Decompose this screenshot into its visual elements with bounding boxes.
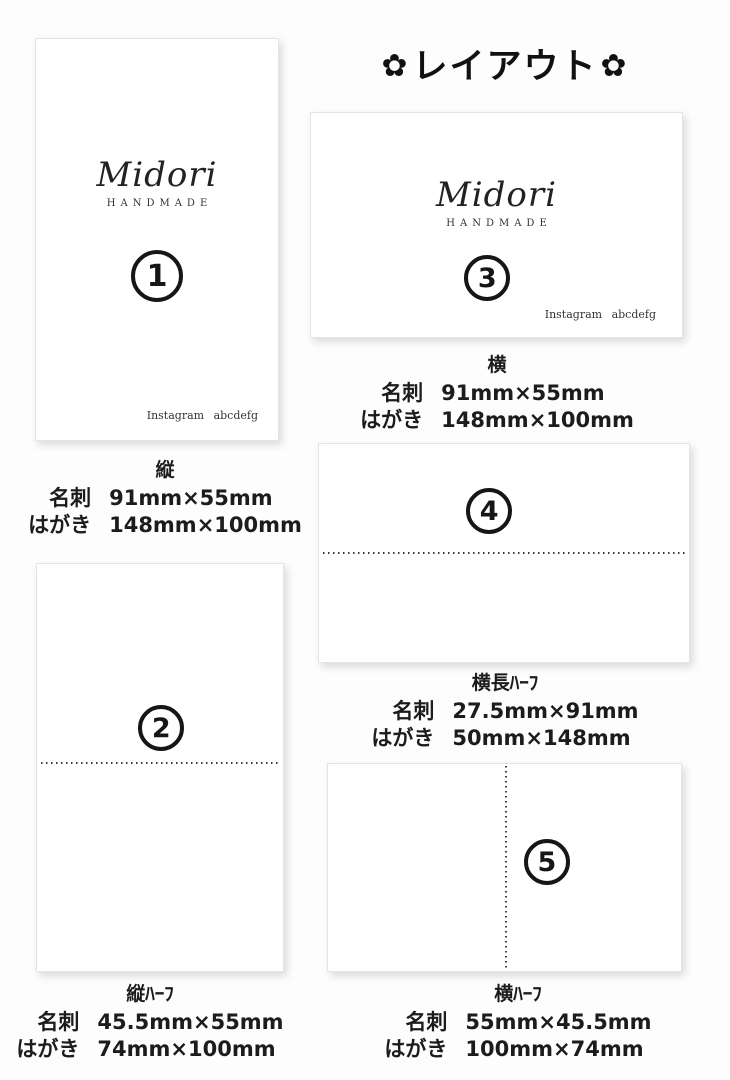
instagram-handle: Instagram abcdefg — [545, 308, 656, 321]
spec-size-table: 名刺 91mm×55mm はがき 148mm×100mm — [360, 380, 634, 433]
hagaki-size: 74mm×100mm — [97, 1036, 283, 1062]
hagaki-label: はがき — [28, 512, 91, 538]
layout-card-4-horizontal-long-half: 4 — [318, 443, 690, 663]
meishi-label: 名刺 — [28, 485, 91, 511]
spec-orientation-label: 縦ﾊｰﾌ — [0, 979, 300, 1006]
spec-size-table: 名刺 91mm×55mm はがき 148mm×100mm — [28, 485, 302, 538]
hagaki-label: はがき — [371, 725, 434, 751]
brand-subtitle: HANDMADE — [311, 218, 682, 229]
spec-horizontal: 横 名刺 91mm×55mm はがき 148mm×100mm — [347, 350, 647, 433]
spec-orientation-label: 横ﾊｰﾌ — [368, 979, 668, 1006]
hagaki-size: 148mm×100mm — [109, 512, 302, 538]
spec-horizontal-long-half: 横長ﾊｰﾌ 名刺 27.5mm×91mm はがき 50mm×148mm — [355, 668, 655, 751]
meishi-label: 名刺 — [371, 698, 434, 724]
instagram-handle: Instagram abcdefg — [147, 409, 258, 422]
spec-orientation-label: 縦 — [15, 455, 315, 482]
meishi-size: 27.5mm×91mm — [452, 698, 638, 724]
layout-guide-page: ✿レイアウト✿ Midori HANDMADE 1 Instagram abcd… — [0, 0, 730, 1080]
fold-line-horizontal — [41, 762, 279, 764]
layout-card-2-vertical-half: 2 — [36, 563, 284, 972]
hagaki-label: はがき — [16, 1036, 79, 1062]
spec-size-table: 名刺 27.5mm×91mm はがき 50mm×148mm — [371, 698, 638, 751]
hagaki-label: はがき — [384, 1036, 447, 1062]
spec-size-table: 名刺 55mm×45.5mm はがき 100mm×74mm — [384, 1009, 651, 1062]
layout-number-2-badge: 2 — [138, 705, 184, 751]
layout-number-5-badge: 5 — [524, 839, 570, 885]
flower-icon: ✿ — [598, 48, 632, 84]
spec-orientation-label: 横 — [347, 350, 647, 377]
fold-line-horizontal — [323, 552, 685, 554]
spec-vertical-half: 縦ﾊｰﾌ 名刺 45.5mm×55mm はがき 74mm×100mm — [0, 979, 300, 1062]
page-title-text: レイアウト — [412, 47, 597, 87]
hagaki-size: 100mm×74mm — [465, 1036, 651, 1062]
spec-horizontal-half: 横ﾊｰﾌ 名刺 55mm×45.5mm はがき 100mm×74mm — [368, 979, 668, 1062]
meishi-size: 45.5mm×55mm — [97, 1009, 283, 1035]
meishi-label: 名刺 — [16, 1009, 79, 1035]
layout-card-1-vertical: Midori HANDMADE 1 Instagram abcdefg — [35, 38, 279, 441]
brand-subtitle: HANDMADE — [36, 198, 278, 209]
fold-line-vertical — [505, 766, 507, 969]
flower-icon: ✿ — [379, 48, 413, 84]
layout-number-3-badge: 3 — [464, 255, 510, 301]
hagaki-size: 50mm×148mm — [452, 725, 638, 751]
meishi-size: 91mm×55mm — [109, 485, 302, 511]
layout-card-3-horizontal: Midori HANDMADE 3 Instagram abcdefg — [310, 112, 683, 338]
spec-size-table: 名刺 45.5mm×55mm はがき 74mm×100mm — [16, 1009, 283, 1062]
brand-name: Midori — [311, 175, 682, 215]
layout-number-1-badge: 1 — [131, 250, 183, 302]
spec-orientation-label: 横長ﾊｰﾌ — [355, 668, 655, 695]
brand-name: Midori — [36, 155, 278, 195]
brand-logo: Midori HANDMADE — [311, 175, 682, 229]
meishi-label: 名刺 — [360, 380, 423, 406]
page-title: ✿レイアウト✿ — [295, 38, 715, 89]
meishi-size: 55mm×45.5mm — [465, 1009, 651, 1035]
spec-vertical: 縦 名刺 91mm×55mm はがき 148mm×100mm — [15, 455, 315, 538]
hagaki-label: はがき — [360, 407, 423, 433]
layout-number-4-badge: 4 — [466, 488, 512, 534]
meishi-label: 名刺 — [384, 1009, 447, 1035]
brand-logo: Midori HANDMADE — [36, 155, 278, 209]
hagaki-size: 148mm×100mm — [441, 407, 634, 433]
layout-card-5-horizontal-half: 5 — [327, 763, 682, 972]
meishi-size: 91mm×55mm — [441, 380, 634, 406]
